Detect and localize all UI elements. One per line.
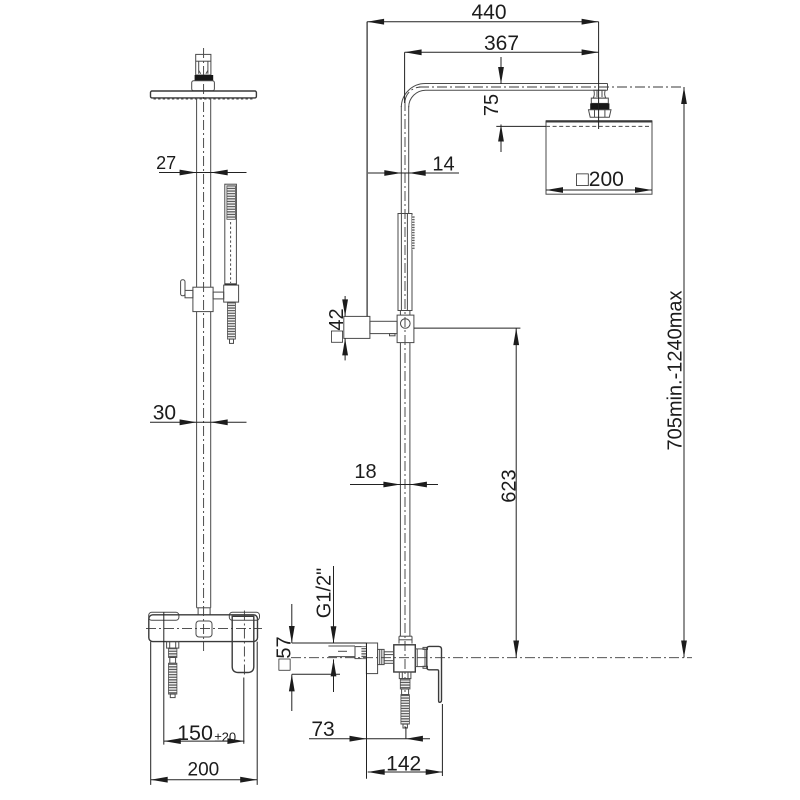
svg-text:G1/2": G1/2" xyxy=(314,568,336,618)
svg-text:75: 75 xyxy=(481,94,503,116)
svg-text:18: 18 xyxy=(354,461,376,483)
svg-text:73: 73 xyxy=(311,718,334,741)
svg-text:705min.-1240max: 705min.-1240max xyxy=(665,290,687,450)
svg-text:623: 623 xyxy=(499,469,521,502)
svg-text:440: 440 xyxy=(471,1,506,24)
svg-text:□200: □200 xyxy=(576,168,624,191)
svg-text:200: 200 xyxy=(188,760,220,781)
svg-text:367: 367 xyxy=(484,32,519,55)
svg-text:27: 27 xyxy=(156,153,176,173)
svg-text:30: 30 xyxy=(153,402,176,425)
svg-text:14: 14 xyxy=(432,154,454,176)
